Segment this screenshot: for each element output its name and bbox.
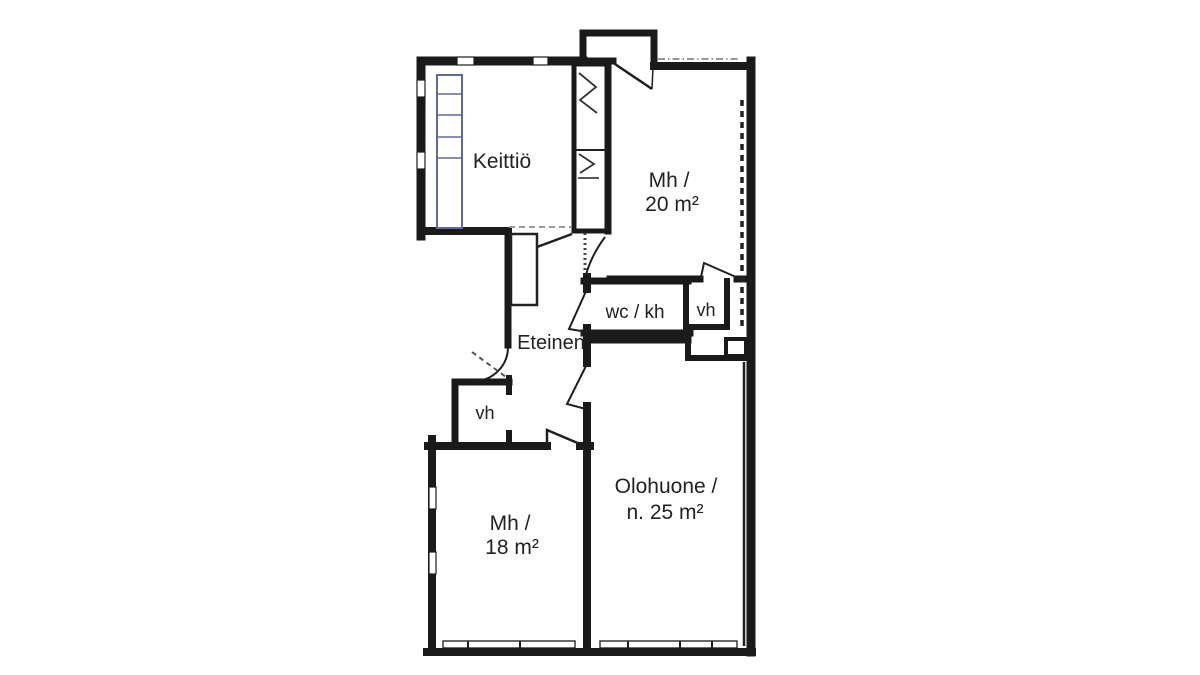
window-bedroom18 [443,641,575,648]
door-bedroom18 [547,430,580,444]
door-protrusion-bedroom20 [612,62,652,89]
room-label-bedroom20-2: 20 m² [645,193,699,216]
door-kitchen [537,234,572,247]
window-kitchen-left-2 [417,152,425,169]
room-label-bedroom20-1: Mh / [649,169,690,192]
floor-plan-page: Keittiö Mh / 20 m² wc / kh vh Eteinen vh… [0,0,1200,675]
room-label-closet-left: vh [475,403,494,423]
room-label-living-1: Olohuone / [615,475,718,498]
room-label-closet-right: vh [696,300,715,320]
room-label-hall: Eteinen [517,332,585,354]
kitchen-cabinets [437,75,462,228]
room-label-bedroom18-1: Mh / [490,512,531,535]
door-protrusion-leaf [652,67,653,89]
structural-column [726,339,746,356]
floor-plan-drawing: Keittiö Mh / 20 m² wc / kh vh Eteinen vh… [0,0,1200,675]
window-bedroom18-left-2 [429,552,436,574]
room-label-living-2: n. 25 m² [626,501,703,524]
window-kitchen-top [457,57,474,65]
room-label-kitchen: Keittiö [473,150,531,173]
duct-shaft [574,64,608,231]
door-bedroom20 [586,237,605,275]
window-bedroom18-left [429,487,436,509]
room-label-wc: wc / kh [604,302,664,323]
hall-wardrobe [511,234,537,305]
cabinet-run [437,75,462,228]
window-kitchen-left [417,80,425,97]
window-living [600,641,737,648]
door-entrance-dashed [472,352,506,377]
door-closet-right [701,263,736,277]
room-label-bedroom18-2: 18 m² [485,536,539,559]
window-kitchen-top-2 [533,57,548,65]
